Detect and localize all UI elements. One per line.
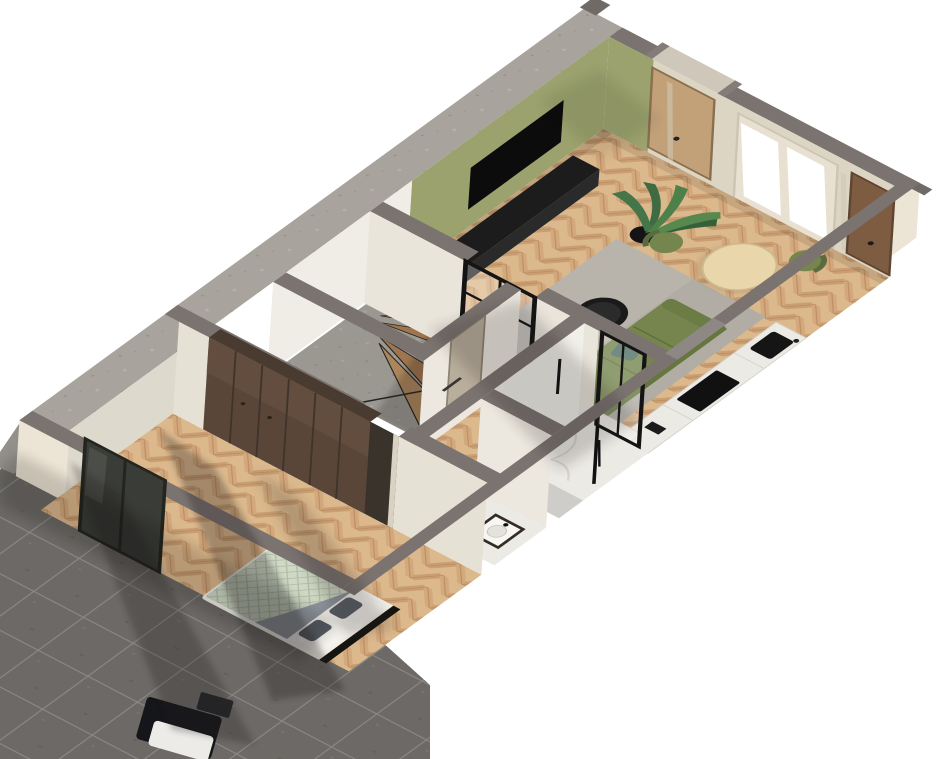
floorplan-render — [0, 0, 951, 759]
